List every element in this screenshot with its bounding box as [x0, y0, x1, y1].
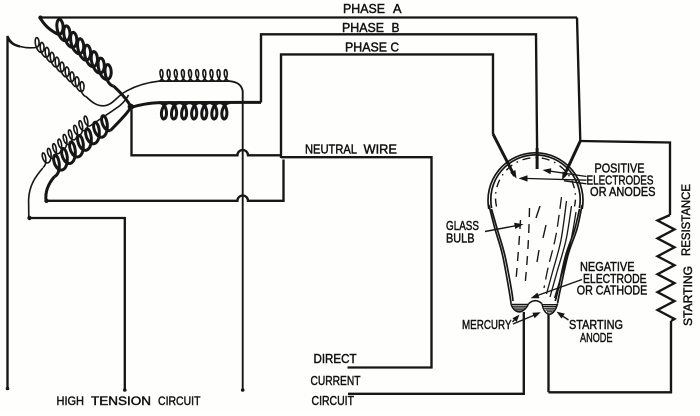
- svg-text:PHASE: PHASE: [345, 39, 387, 54]
- svg-text:NEUTRAL: NEUTRAL: [305, 142, 357, 157]
- svg-text:C: C: [391, 39, 400, 54]
- svg-text:CURRENT: CURRENT: [311, 374, 361, 388]
- svg-text:TENSION: TENSION: [91, 394, 151, 408]
- svg-text:ANODE: ANODE: [580, 330, 613, 345]
- svg-text:A: A: [393, 1, 402, 16]
- svg-text:CIRCUIT: CIRCUIT: [158, 394, 201, 408]
- svg-text:OR ANODES: OR ANODES: [590, 184, 656, 199]
- svg-text:PHASE: PHASE: [342, 20, 384, 35]
- svg-text:OR CATHODE: OR CATHODE: [577, 283, 648, 298]
- svg-text:B: B: [392, 20, 400, 35]
- svg-text:PHASE: PHASE: [343, 1, 385, 16]
- svg-text:WIRE: WIRE: [364, 142, 398, 157]
- svg-text:MERCURY: MERCURY: [462, 317, 512, 332]
- svg-text:DIRECT: DIRECT: [314, 352, 357, 366]
- svg-text:BULB: BULB: [446, 231, 475, 246]
- svg-text:HIGH: HIGH: [57, 394, 85, 408]
- svg-text:CIRCUIT: CIRCUIT: [312, 394, 355, 408]
- svg-text:STARTING: STARTING: [681, 266, 695, 326]
- svg-text:RESISTANCE: RESISTANCE: [679, 184, 693, 256]
